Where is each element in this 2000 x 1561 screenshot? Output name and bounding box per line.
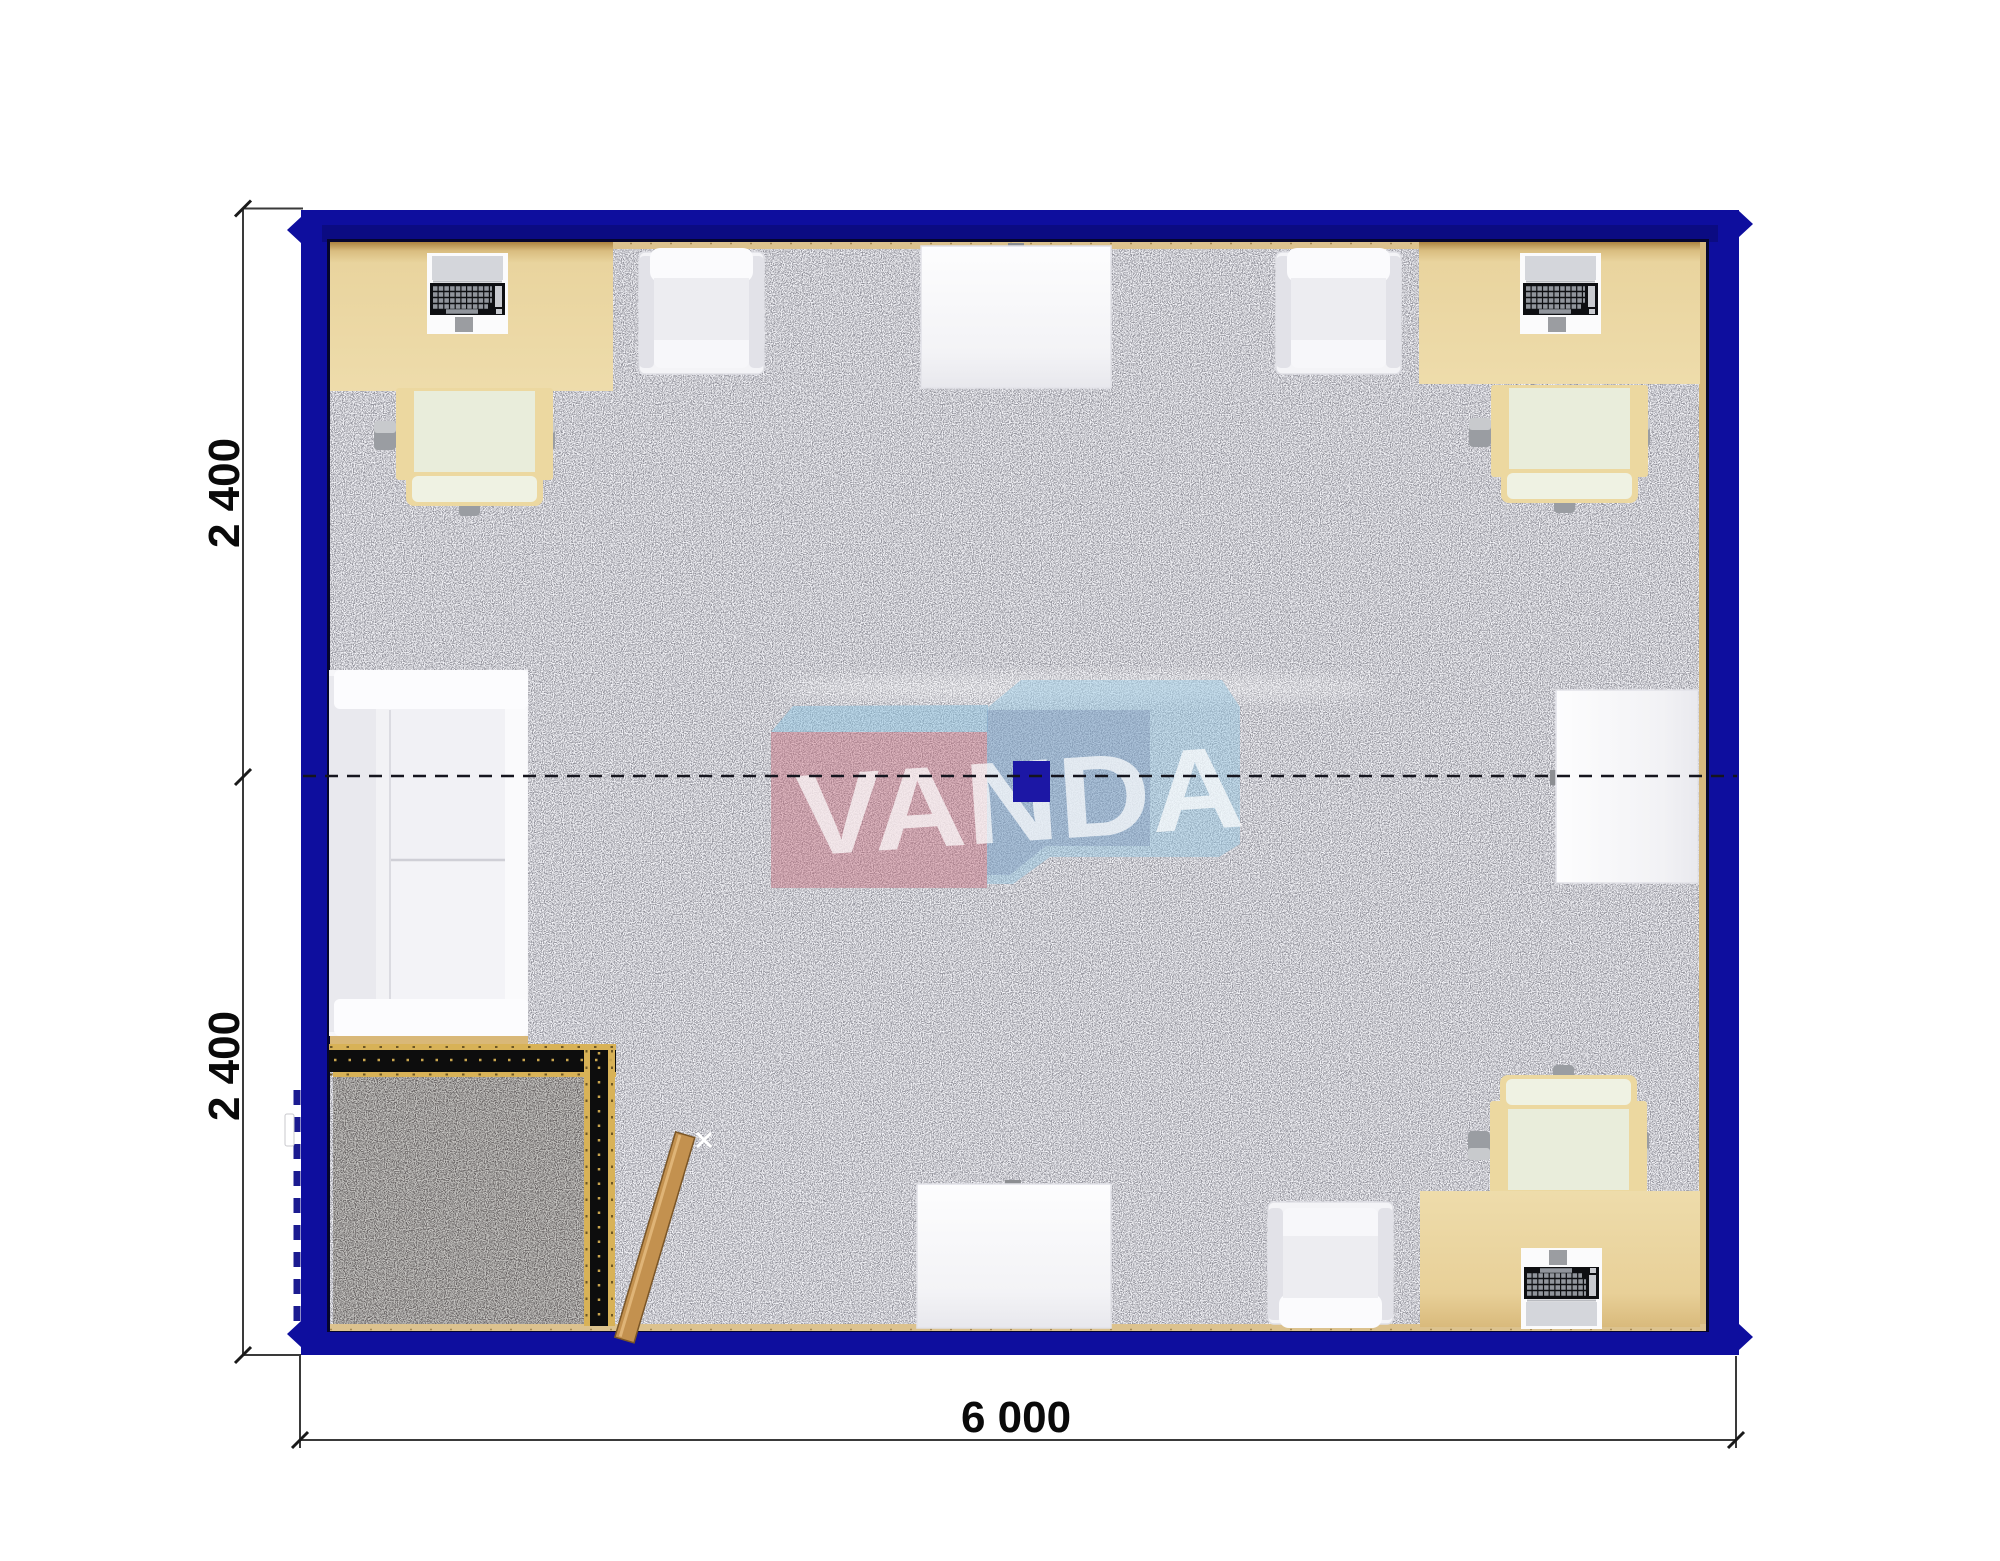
- svg-text:6 000: 6 000: [961, 1393, 1071, 1442]
- svg-text:2 400: 2 400: [200, 1011, 249, 1121]
- svg-text:2 400: 2 400: [200, 438, 249, 548]
